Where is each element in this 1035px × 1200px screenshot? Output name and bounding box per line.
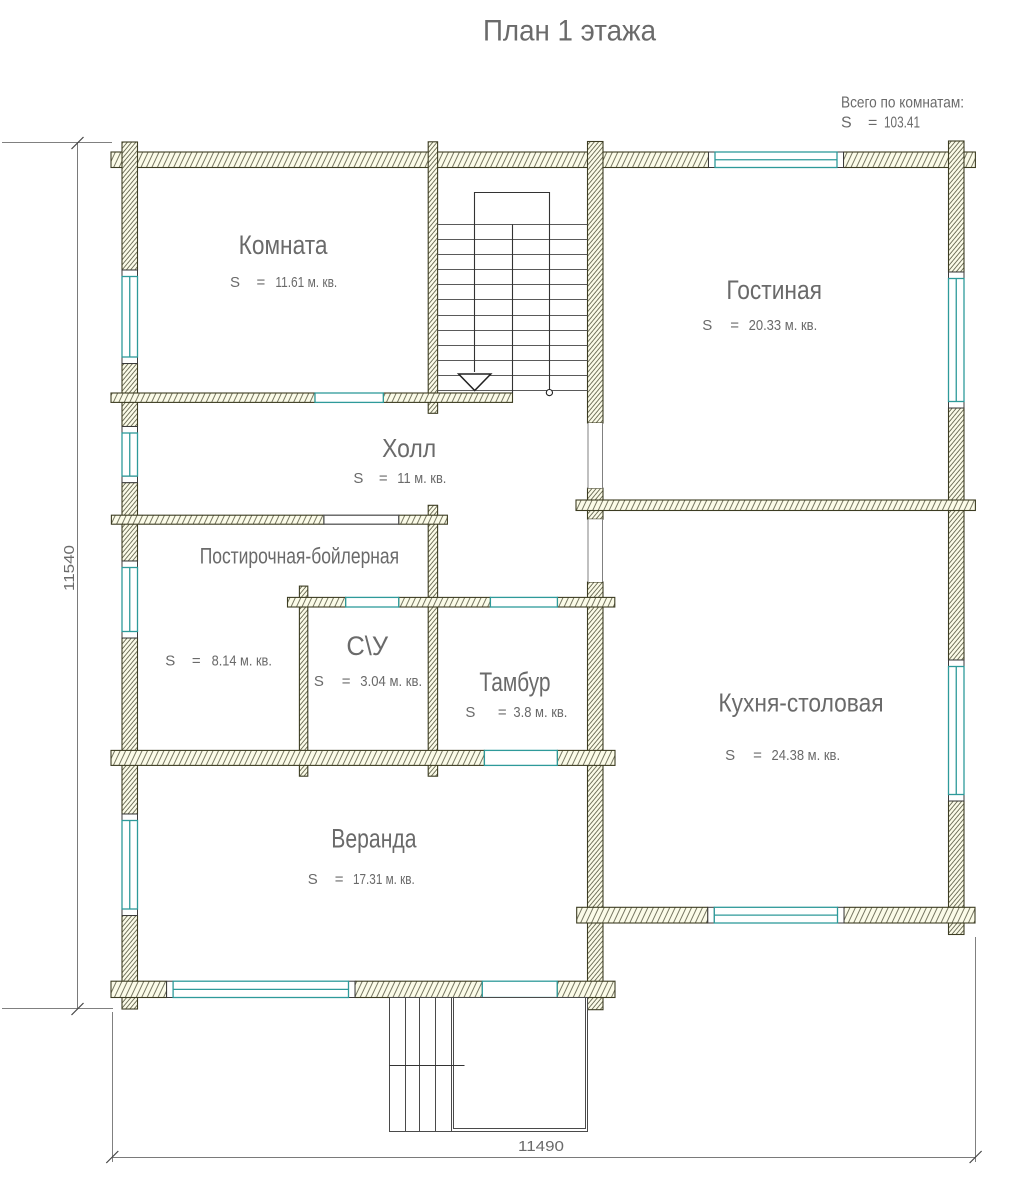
svg-text:S: S	[314, 673, 324, 690]
svg-text:3.8 м. кв.: 3.8 м. кв.	[513, 704, 567, 721]
svg-text:S: S	[308, 871, 318, 888]
svg-text:С\У: С\У	[346, 631, 388, 661]
svg-text:S: S	[230, 274, 240, 291]
svg-text:=: =	[868, 115, 877, 132]
svg-text:S: S	[165, 653, 175, 670]
svg-text:17.31 м. кв.: 17.31 м. кв.	[353, 871, 415, 888]
svg-text:24.38 м. кв.: 24.38 м. кв.	[772, 747, 841, 764]
svg-text:11490: 11490	[518, 1138, 564, 1155]
svg-text:Постирочная-бойлерная: Постирочная-бойлерная	[200, 544, 399, 569]
svg-text:=: =	[379, 470, 388, 487]
svg-text:8.14 м. кв.: 8.14 м. кв.	[212, 653, 272, 670]
svg-text:=: =	[192, 653, 201, 670]
svg-text:=: =	[730, 317, 739, 334]
svg-text:Всего по комнатам:: Всего по комнатам:	[841, 95, 964, 112]
svg-text:=: =	[753, 747, 762, 764]
svg-text:Тамбур: Тамбур	[479, 667, 550, 697]
svg-text:S: S	[702, 317, 712, 334]
svg-text:Комната: Комната	[239, 230, 329, 260]
svg-text:Гостиная: Гостиная	[726, 275, 822, 305]
svg-text:S: S	[841, 115, 852, 132]
svg-text:11540: 11540	[61, 545, 78, 591]
svg-text:S: S	[353, 470, 363, 487]
svg-text:=: =	[498, 704, 507, 721]
svg-text:Веранда: Веранда	[331, 824, 417, 854]
svg-text:3.04 м. кв.: 3.04 м. кв.	[360, 673, 422, 690]
svg-text:План 1 этажа: План 1 этажа	[483, 15, 656, 48]
svg-text:Кухня-столовая: Кухня-столовая	[718, 688, 883, 718]
svg-text:103.41: 103.41	[884, 115, 920, 132]
svg-text:=: =	[257, 274, 266, 291]
svg-text:11 м. кв.: 11 м. кв.	[397, 470, 446, 487]
svg-text:Холл: Холл	[382, 433, 436, 463]
svg-text:S: S	[465, 704, 475, 721]
svg-text:20.33 м. кв.: 20.33 м. кв.	[749, 317, 818, 334]
svg-text:S: S	[725, 747, 735, 764]
svg-text:11.61 м. кв.: 11.61 м. кв.	[275, 274, 337, 291]
svg-text:=: =	[342, 673, 351, 690]
svg-text:=: =	[335, 871, 344, 888]
